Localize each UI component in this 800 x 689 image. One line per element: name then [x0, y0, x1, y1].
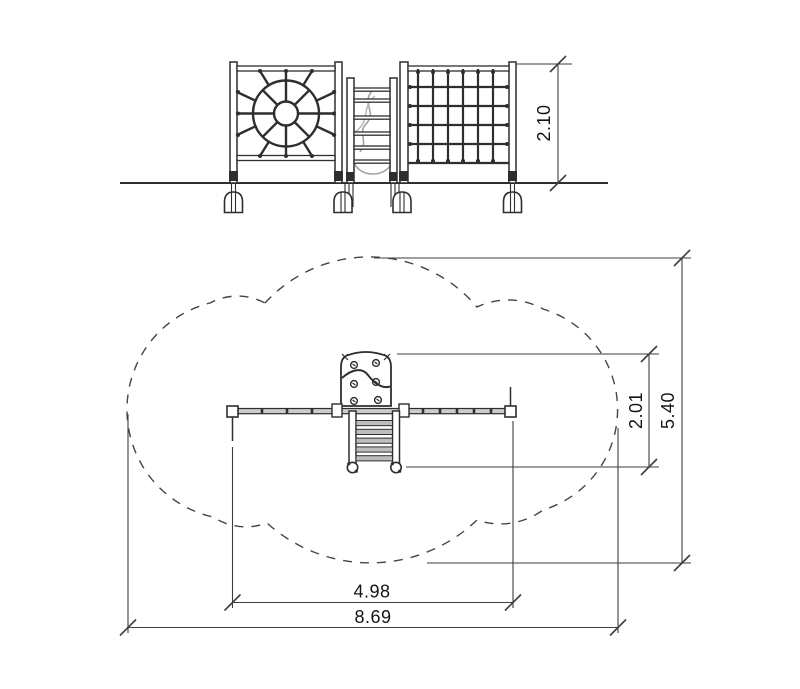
climbing-panel-plan [332, 352, 409, 417]
playground-equipment-drawing: 2.10 [0, 0, 800, 689]
web-panel-right-post [335, 62, 342, 183]
grid-panel-left-post [400, 62, 408, 183]
ladder-section [347, 78, 397, 183]
plan-view: 2.01 5.40 4.98 8.69 [120, 250, 691, 636]
rail-collar-left [332, 404, 342, 417]
grid-panel-right-post [509, 62, 516, 183]
ladder-plan [347, 411, 401, 473]
ladder-plan-rungs [356, 421, 393, 461]
climbing-panel-outline [341, 352, 391, 406]
web-panel-left-post [230, 62, 237, 183]
dimension-label-2-10: 2.10 [534, 104, 554, 141]
dimension-elevation-height: 2.10 [516, 56, 572, 191]
grid-net-vertical-ropes [418, 69, 493, 164]
ground-anchors [225, 171, 522, 213]
elevation-view: 2.10 [120, 56, 608, 213]
web-net-panel [230, 62, 342, 183]
dimension-label-5-40: 5.40 [658, 392, 678, 429]
technical-drawing-sheet: 2.10 [0, 0, 800, 689]
ladder-plan-left-stringer [349, 411, 356, 465]
ladder-left-stringer [347, 78, 354, 183]
anchor-feet [225, 192, 522, 213]
ladder-plan-right-stringer [393, 411, 400, 465]
grid-net-panel [400, 62, 516, 183]
right-end-post [505, 406, 516, 417]
ladder-rungs [354, 88, 390, 163]
left-end-post [227, 406, 238, 417]
web-spokes [253, 81, 319, 147]
dimension-label-4-98: 4.98 [353, 582, 390, 602]
anchor-rods [232, 183, 515, 211]
ladder-right-stringer [390, 78, 397, 183]
dimension-label-8-69: 8.69 [354, 607, 391, 627]
dimension-label-2-01: 2.01 [626, 392, 646, 429]
rail-collar-right [399, 404, 409, 417]
post-clamps [229, 171, 517, 181]
main-rail [238, 409, 506, 414]
